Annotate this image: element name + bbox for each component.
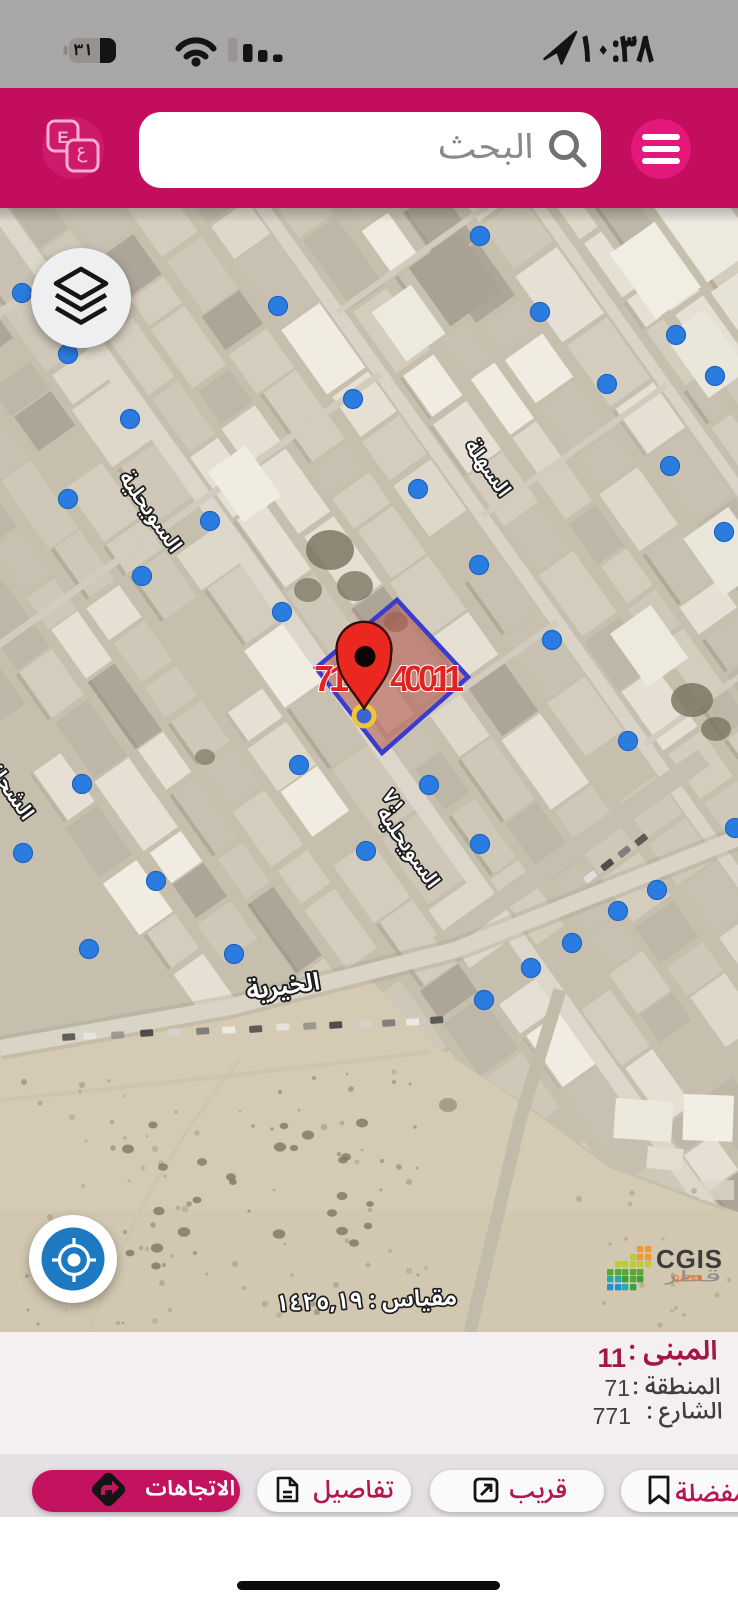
svg-text:71: 71 xyxy=(604,1375,630,1401)
svg-text:771: 771 xyxy=(593,1403,631,1429)
svg-text:40011: 40011 xyxy=(390,658,464,699)
svg-text:CGIS: CGIS xyxy=(656,1244,722,1274)
svg-text:11: 11 xyxy=(597,1343,626,1373)
svg-text:QATAR: QATAR xyxy=(673,1274,703,1283)
